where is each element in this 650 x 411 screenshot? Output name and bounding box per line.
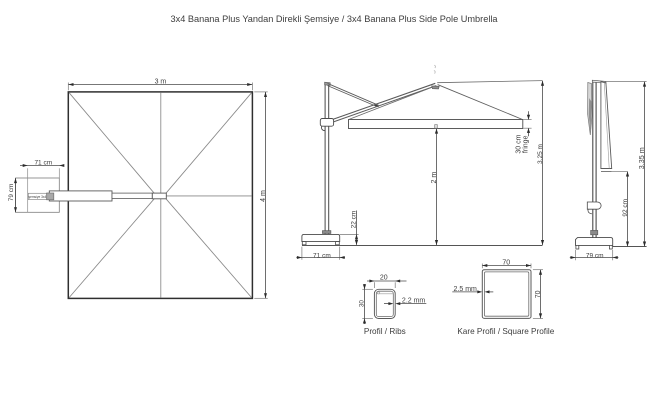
svg-text:Kare Profil / Square Profile: Kare Profil / Square Profile — [457, 327, 554, 336]
svg-text:79 cm: 79 cm — [586, 253, 604, 260]
svg-text:70: 70 — [502, 259, 510, 266]
svg-text:70: 70 — [535, 290, 542, 298]
svg-text:2.2 mm: 2.2 mm — [402, 298, 426, 305]
svg-text:92 cm: 92 cm — [622, 199, 629, 217]
svg-text:3x4 Banana Plus Yandan Direkli: 3x4 Banana Plus Yandan Direkli Şemsiye /… — [170, 14, 498, 24]
svg-text:3.25 m: 3.25 m — [537, 144, 544, 164]
svg-text:71 cm: 71 cm — [313, 252, 331, 259]
svg-text:3 m: 3 m — [155, 79, 167, 86]
svg-text:30 cmfringe: 30 cmfringe — [516, 134, 530, 153]
svg-text:Profil / Ribs: Profil / Ribs — [364, 327, 406, 336]
svg-text:4 m: 4 m — [260, 190, 267, 202]
svg-text:30: 30 — [358, 300, 365, 308]
svg-text:3.35 m: 3.35 m — [637, 147, 646, 169]
svg-text:71 cm: 71 cm — [34, 159, 52, 166]
svg-text:79 cm: 79 cm — [8, 184, 15, 202]
svg-text:22 cm: 22 cm — [350, 211, 357, 229]
svg-text:şemsiye 3x4: şemsiye 3x4 — [29, 195, 47, 199]
svg-text:2 m: 2 m — [431, 172, 438, 184]
svg-text:20: 20 — [380, 275, 388, 282]
